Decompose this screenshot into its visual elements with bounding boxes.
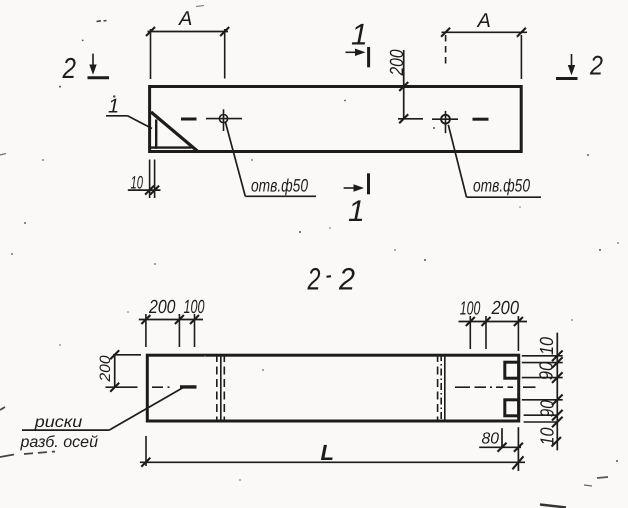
- svg-text:100: 100: [184, 297, 205, 318]
- svg-text:A: A: [477, 10, 491, 32]
- svg-text:200: 200: [387, 49, 408, 76]
- svg-text:1: 1: [351, 18, 368, 51]
- svg-text:A: A: [178, 8, 192, 30]
- svg-text:10: 10: [131, 173, 144, 193]
- svg-text:отв.ф50: отв.ф50: [251, 176, 308, 196]
- svg-text:2: 2: [338, 262, 355, 297]
- svg-text:90: 90: [538, 400, 559, 417]
- svg-text:200: 200: [491, 298, 520, 319]
- svg-text:80: 80: [482, 431, 500, 448]
- svg-text:2: 2: [307, 262, 321, 297]
- svg-text:риски: риски: [34, 414, 83, 431]
- svg-text:L: L: [321, 440, 334, 465]
- svg-text:разб. осей: разб. осей: [19, 434, 98, 451]
- svg-text:2: 2: [589, 51, 603, 81]
- svg-text:1: 1: [108, 96, 119, 118]
- svg-text:2: 2: [62, 53, 76, 85]
- svg-text:10: 10: [537, 337, 558, 355]
- svg-text:90: 90: [537, 361, 558, 380]
- svg-text:100: 100: [460, 299, 481, 320]
- svg-text:1: 1: [348, 195, 365, 228]
- svg-text:отв.ф50: отв.ф50: [473, 176, 530, 196]
- svg-text:10: 10: [537, 427, 558, 445]
- svg-text:200: 200: [148, 297, 176, 318]
- svg-text:200: 200: [97, 355, 114, 383]
